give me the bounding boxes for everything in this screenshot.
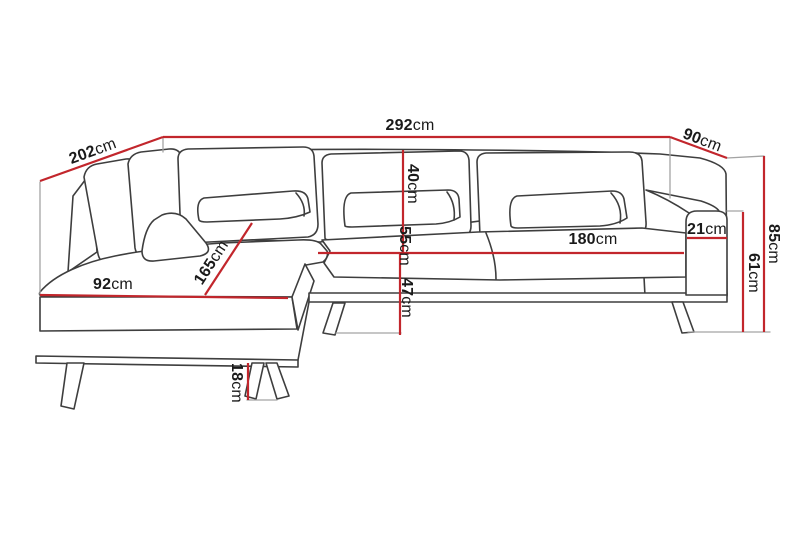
- dim-backrest-height-label: 55cm: [396, 226, 412, 266]
- extension-right-top: [727, 156, 764, 158]
- lumbar-pillow-3: [510, 191, 627, 228]
- dim-overall-height-label: 85cm: [765, 224, 781, 264]
- dim-seat-width-label: 180cm: [568, 232, 617, 248]
- chaise-mattress-front: [40, 297, 297, 331]
- sofa-line-drawing: [0, 0, 800, 533]
- leg-chaise-left: [61, 363, 84, 409]
- dim-leg-height-label: 18cm: [228, 363, 244, 403]
- dim-chaise-width-label: 92cm: [93, 277, 133, 293]
- dim-overall-width-label: 292cm: [385, 118, 434, 134]
- dim-armrest-width-label: 21cm: [687, 222, 727, 238]
- leg-chaise-right-b: [266, 363, 289, 399]
- dim-seat-height-label: 47cm: [398, 278, 414, 318]
- sofa-dimension-diagram: 292cm 202cm 90cm 85cm 61cm 21cm 180cm 40…: [0, 0, 800, 533]
- dim-armrest-height-label: 61cm: [745, 253, 761, 293]
- leg-sofa-right: [672, 302, 694, 333]
- sofa: [36, 147, 727, 409]
- main-base: [309, 293, 727, 302]
- leg-sofa-left: [323, 303, 345, 335]
- dim-back-cushion-height-label: 40cm: [404, 164, 420, 204]
